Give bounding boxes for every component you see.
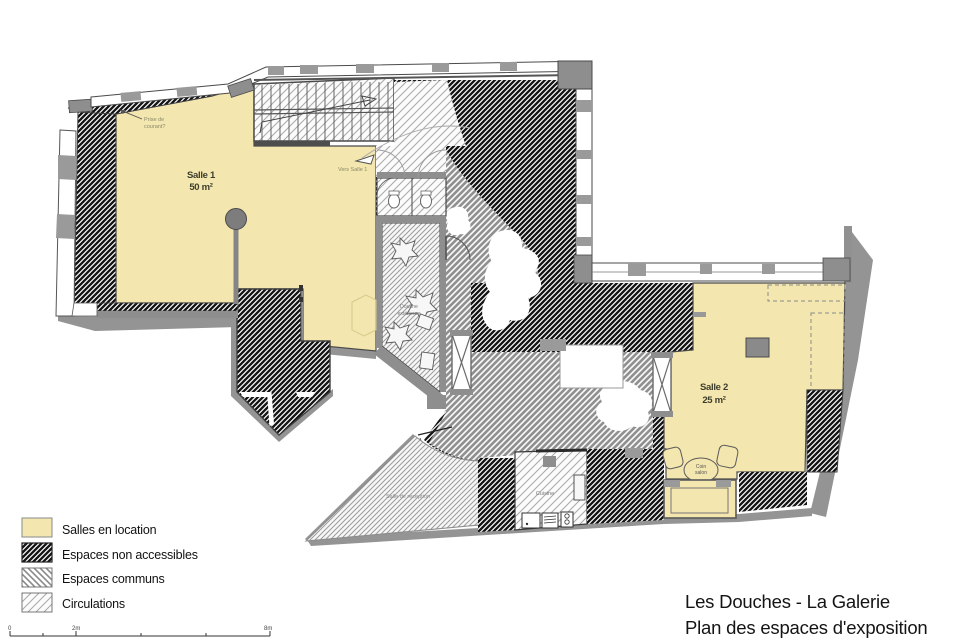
- svg-text:25 m²: 25 m²: [702, 395, 725, 406]
- svg-text:Espaces non accessibles: Espaces non accessibles: [62, 548, 198, 562]
- svg-text:Salle 1: Salle 1: [187, 170, 216, 181]
- svg-text:Plan des espaces d'exposition: Plan des espaces d'exposition: [685, 617, 928, 638]
- svg-text:Circulations: Circulations: [62, 597, 125, 611]
- svg-text:Prise de: Prise de: [144, 117, 164, 123]
- svg-text:Salle 2: Salle 2: [700, 382, 728, 393]
- svg-text:50 m²: 50 m²: [189, 182, 212, 193]
- svg-text:Douche: Douche: [400, 304, 418, 310]
- svg-text:Vers Salle 1: Vers Salle 1: [338, 167, 367, 173]
- svg-text:courant?: courant?: [144, 124, 165, 130]
- svg-text:Salles en location: Salles en location: [62, 523, 157, 537]
- svg-text:Salle de réception: Salle de réception: [386, 494, 430, 500]
- svg-text:Espaces communs: Espaces communs: [62, 572, 165, 586]
- svg-text:salon: salon: [695, 470, 707, 476]
- svg-text:Les Douches - La Galerie: Les Douches - La Galerie: [685, 591, 890, 612]
- svg-text:Cuisine: Cuisine: [536, 491, 554, 497]
- svg-text:extérieure: extérieure: [397, 311, 420, 317]
- svg-text:2m: 2m: [72, 626, 80, 632]
- svg-text:8m: 8m: [264, 626, 272, 632]
